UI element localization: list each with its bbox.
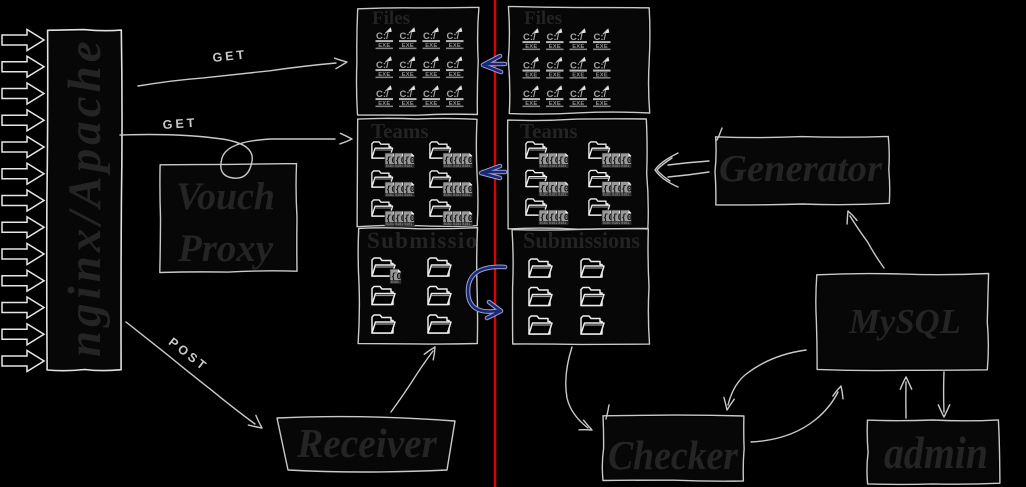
svg-text:Submissions: Submissions xyxy=(523,228,640,253)
svg-text:Proxy: Proxy xyxy=(177,227,274,270)
svg-text:Receiver: Receiver xyxy=(296,420,438,466)
svg-text:Generator: Generator xyxy=(719,148,883,190)
svg-text:Vouch: Vouch xyxy=(176,175,275,218)
svg-text:MySQL: MySQL xyxy=(848,302,961,341)
svg-text:nginx/Apache: nginx/Apache xyxy=(59,37,111,357)
svg-text:Teams: Teams xyxy=(371,119,429,143)
svg-text:Files: Files xyxy=(524,8,562,29)
svg-text:admin: admin xyxy=(884,428,988,478)
svg-text:Teams: Teams xyxy=(520,119,578,143)
svg-text:Files: Files xyxy=(372,8,410,29)
svg-text:GET: GET xyxy=(162,116,198,132)
svg-text:Checker: Checker xyxy=(608,432,739,478)
svg-text:Submissio: Submissio xyxy=(367,228,478,253)
